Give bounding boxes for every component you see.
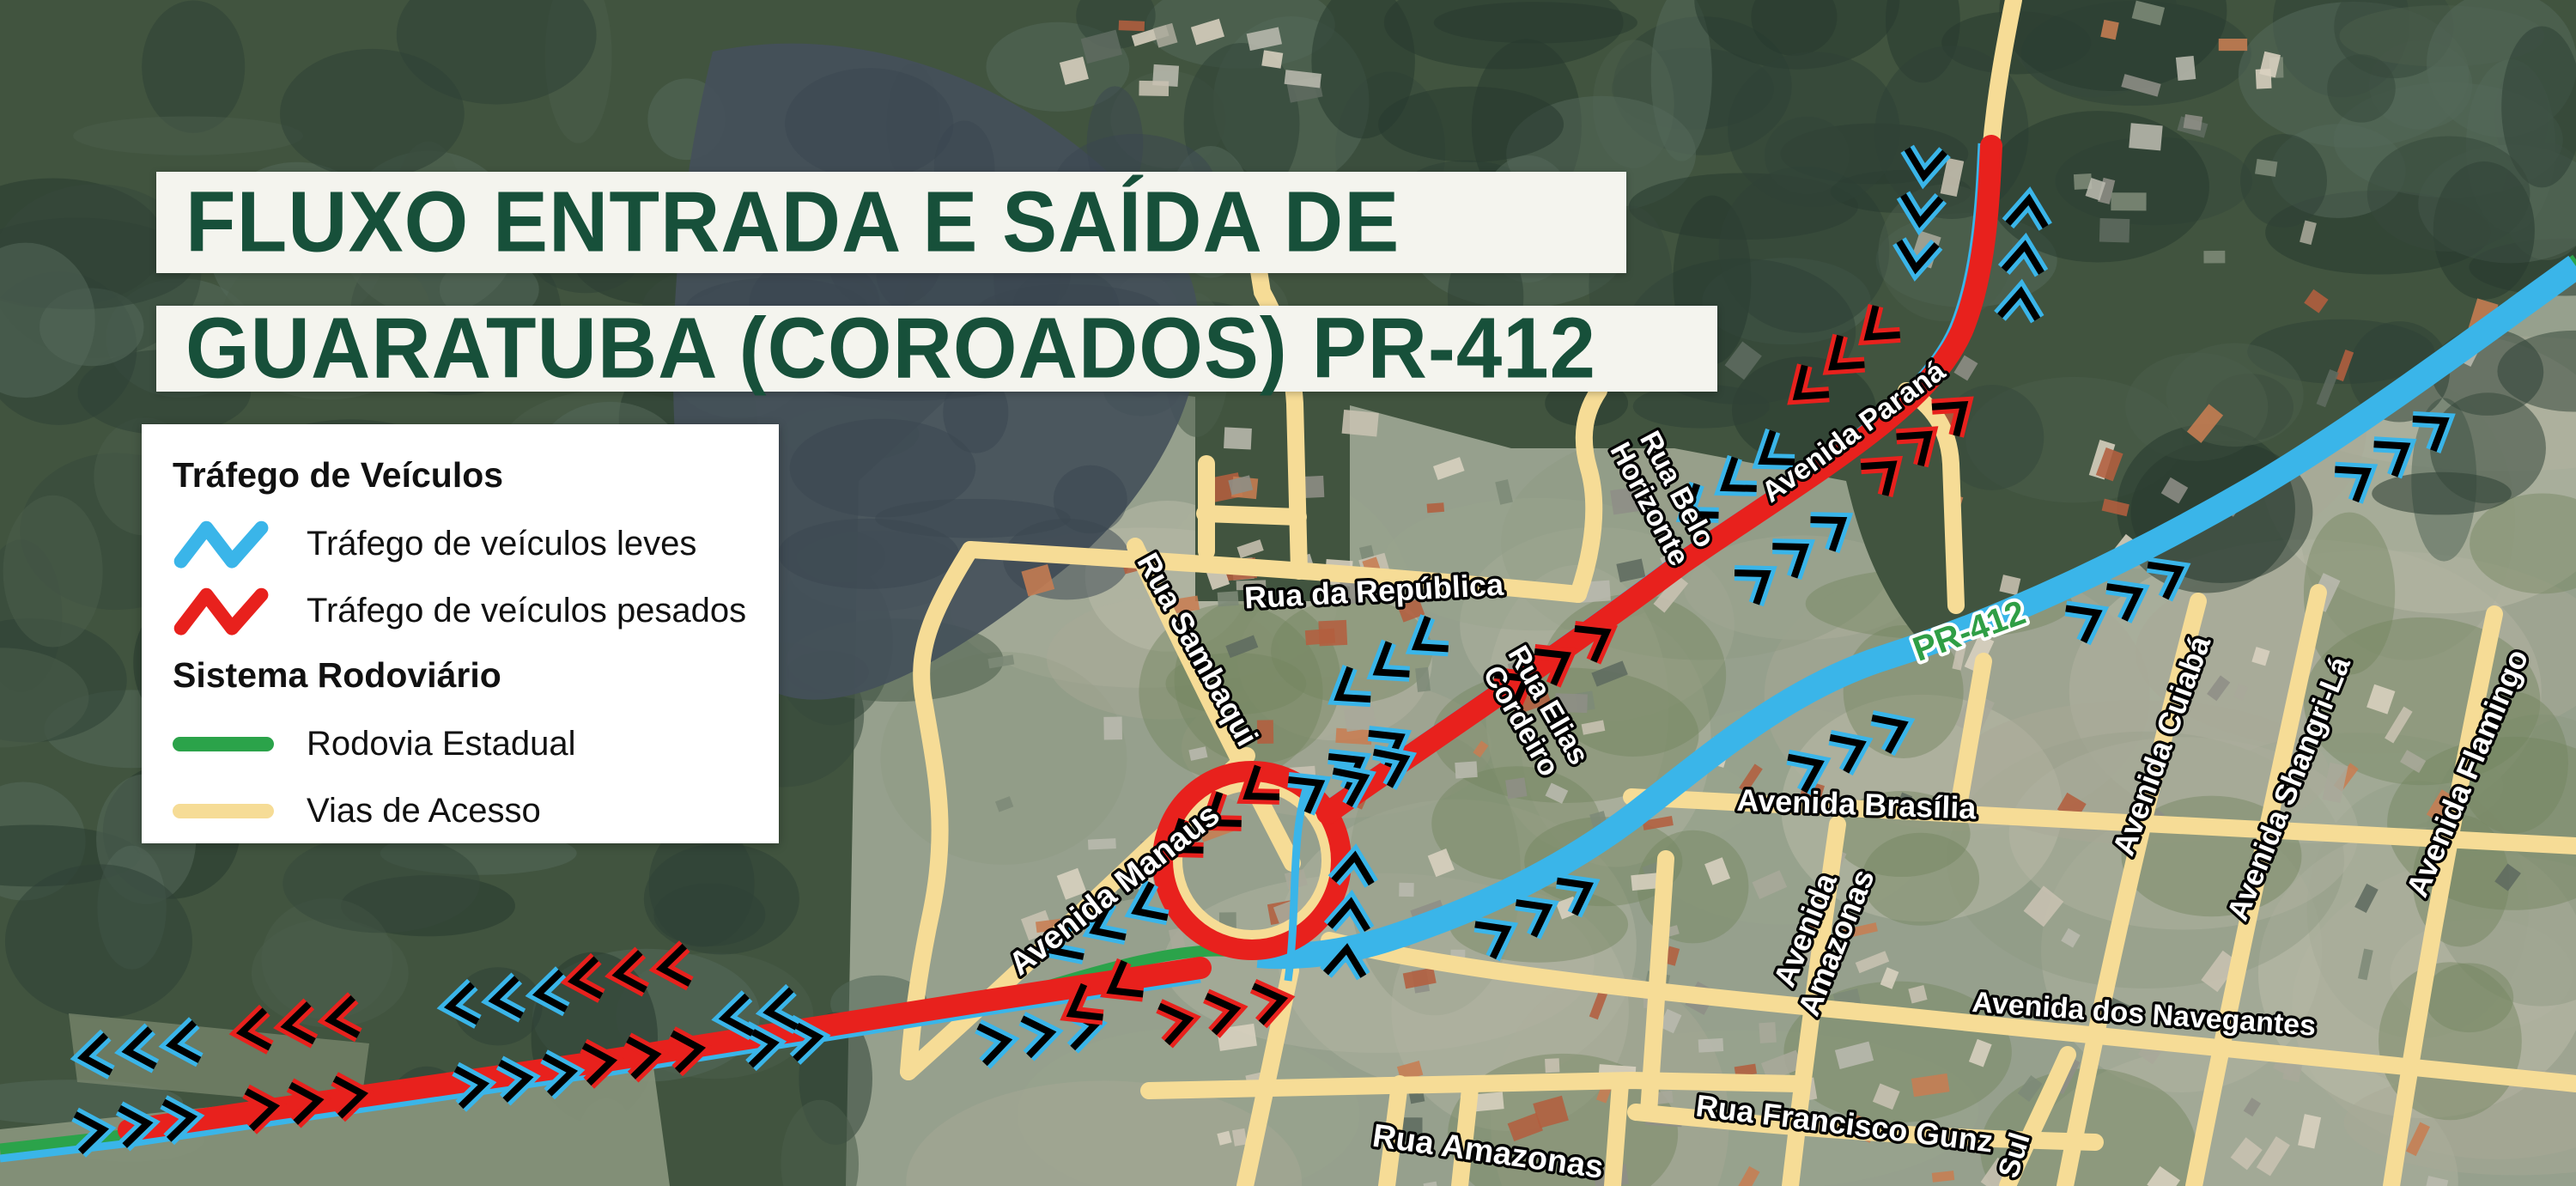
map-legend: Tráfego de Veículos Tráfego de veículos …: [142, 424, 779, 843]
heavy-traffic-zigzag-icon: [173, 583, 276, 638]
legend-item-label: Tráfego de veículos leves: [307, 525, 696, 563]
traffic-flow-map-page: { "title": { "line1": "FLUXO ENTRADA E S…: [0, 0, 2576, 1186]
legend-item-heavy: Tráfego de veículos pesados: [173, 583, 748, 638]
access-road-bar-icon: [173, 804, 274, 818]
legend-item-label: Vias de Acesso: [307, 792, 541, 830]
title-strip-line1: FLUXO ENTRADA E SAÍDA DE: [156, 172, 1626, 273]
page-title-line1: FLUXO ENTRADA E SAÍDA DE: [156, 179, 1400, 265]
legend-road-header: Sistema Rodoviário: [173, 655, 748, 696]
title-strip-line2: GUARATUBA (COROADOS) PR-412: [156, 306, 1717, 392]
state-road-bar-icon: [173, 737, 274, 751]
legend-item-light: Tráfego de veículos leves: [173, 516, 748, 571]
page-title-line2: GUARATUBA (COROADOS) PR-412: [156, 306, 1596, 392]
legend-item-label: Tráfego de veículos pesados: [307, 592, 746, 630]
legend-item-label: Rodovia Estadual: [307, 725, 576, 763]
legend-road-rows: Rodovia EstadualVias de Acesso: [173, 704, 748, 850]
legend-traffic-header: Tráfego de Veículos: [173, 455, 748, 496]
light-traffic-zigzag-icon: [173, 516, 276, 571]
legend-traffic-rows: Tráfego de veículos levesTráfego de veíc…: [173, 504, 748, 650]
legend-item-access: Vias de Acesso: [173, 783, 748, 838]
legend-item-state: Rodovia Estadual: [173, 716, 748, 771]
